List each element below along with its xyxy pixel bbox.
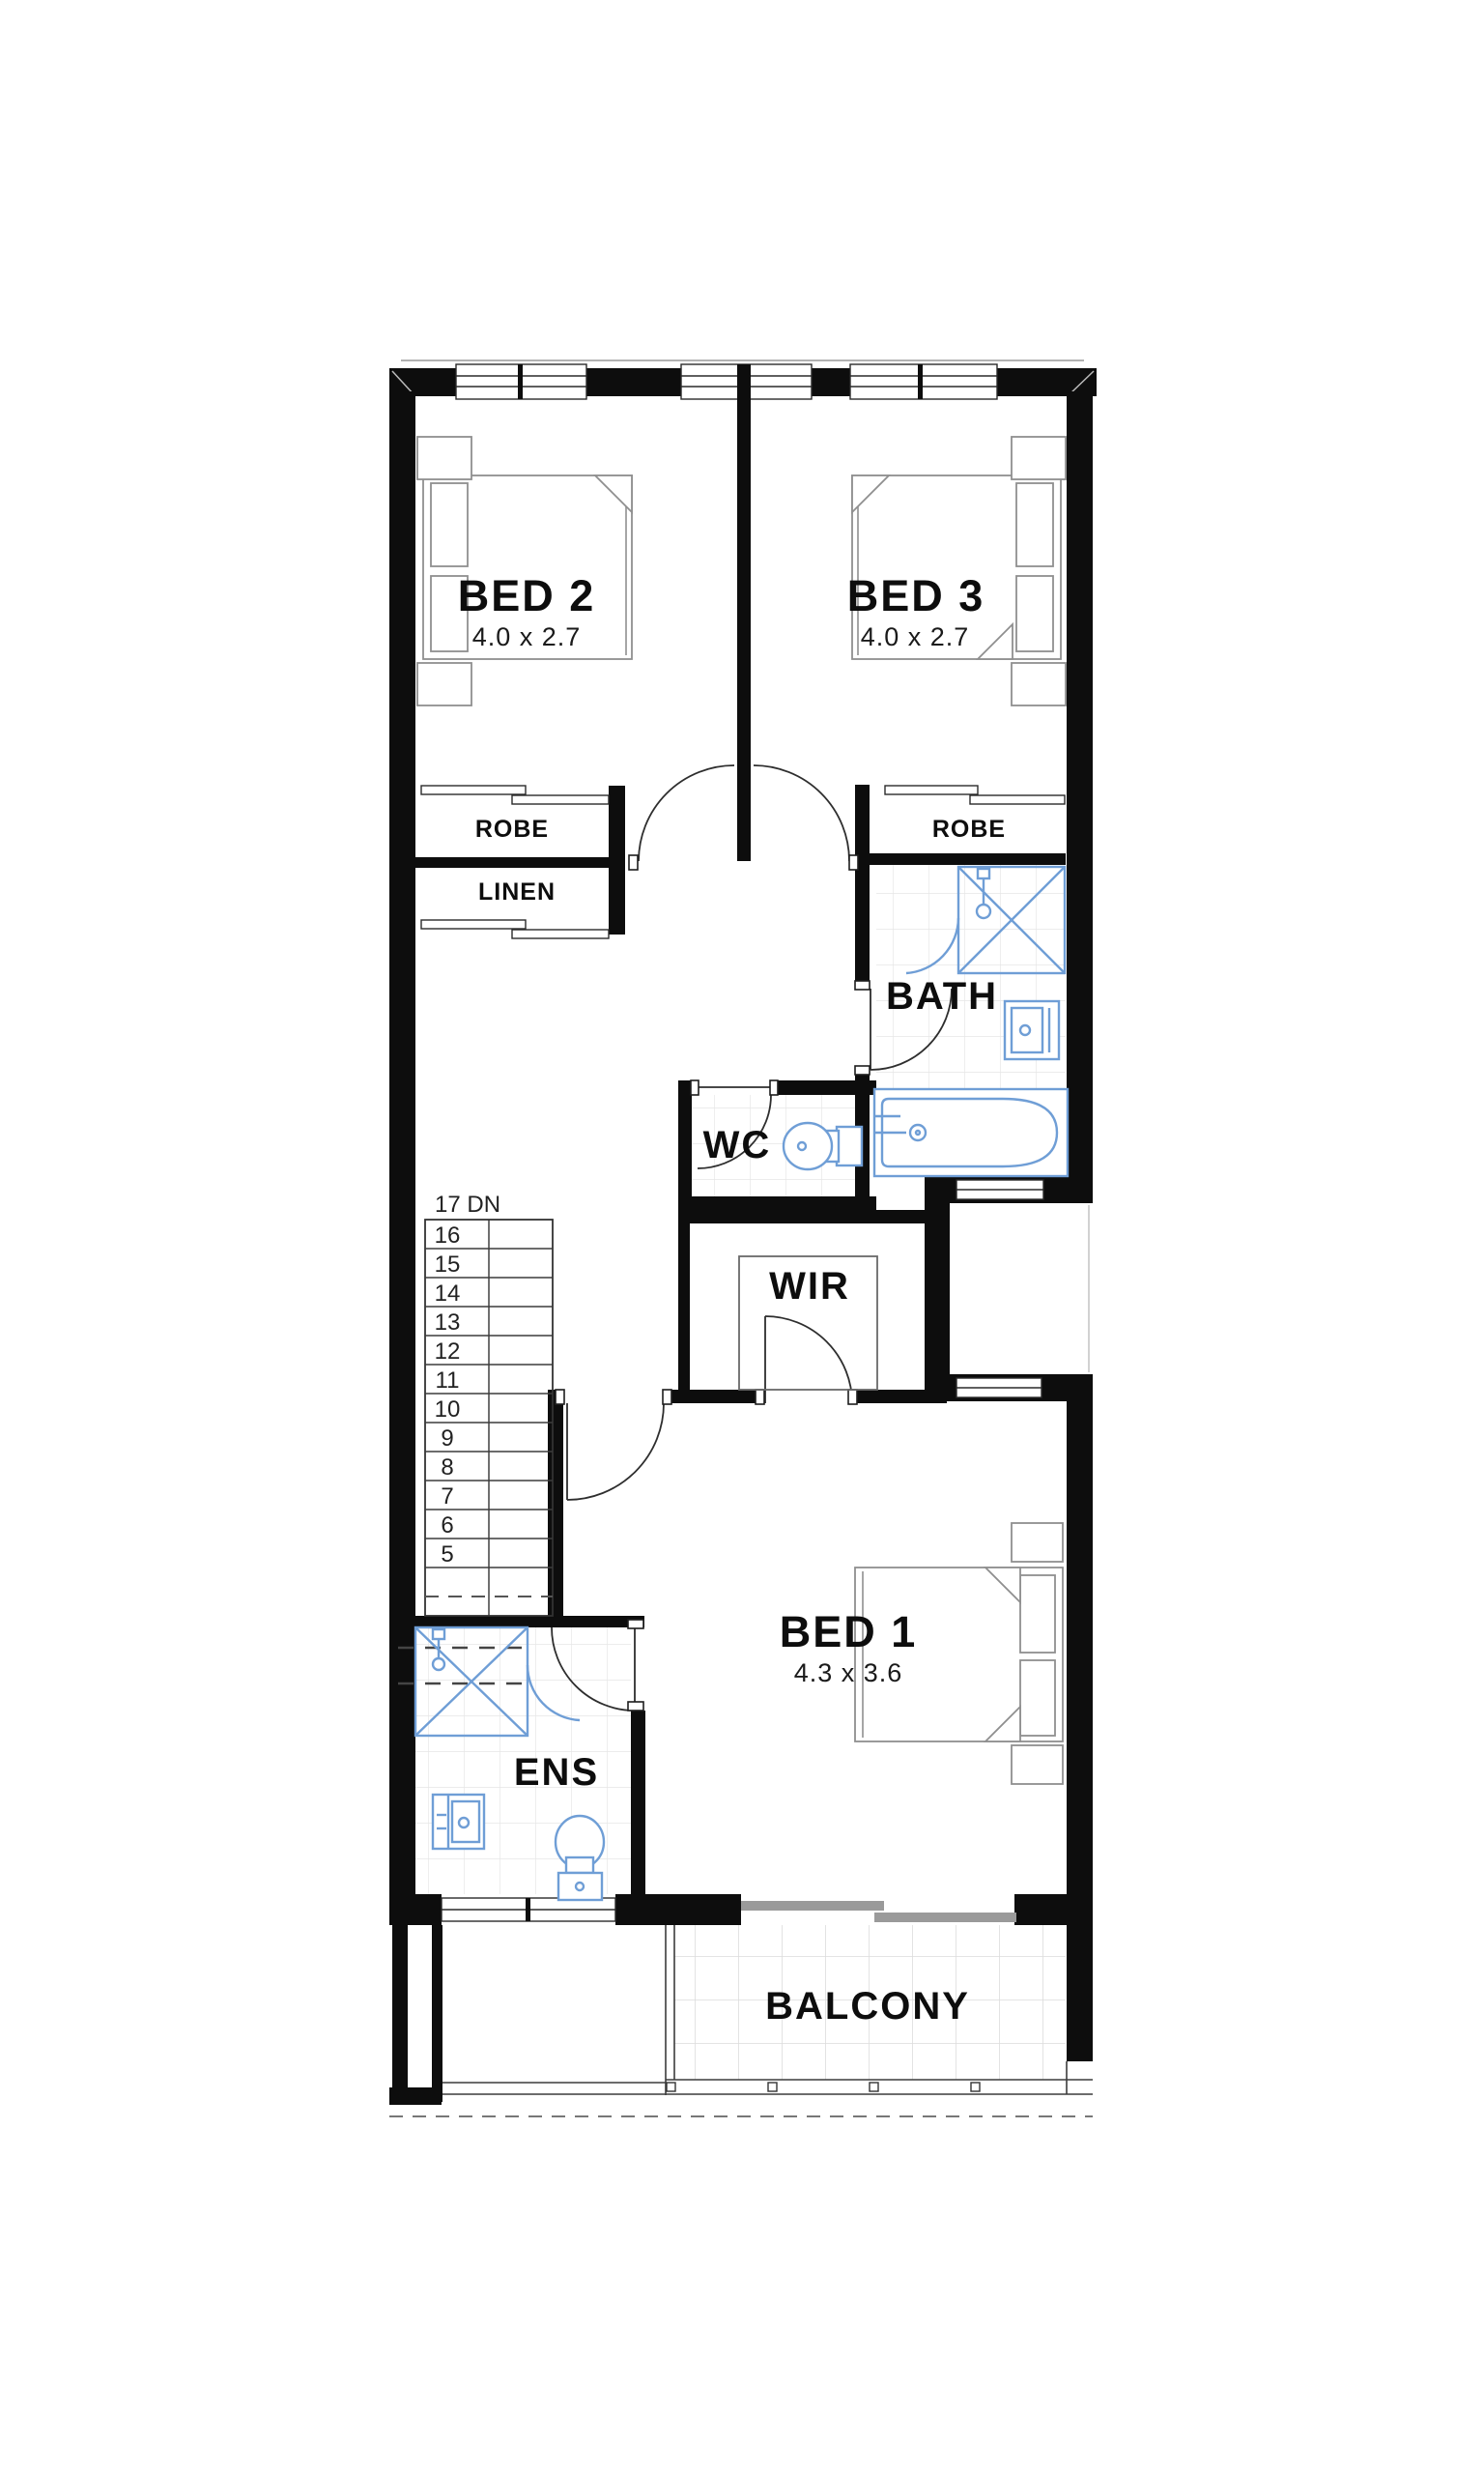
floor-plan: 17 DN 16 15 14 13 12 11 10 9 8 7 6 5: [0, 0, 1484, 2474]
window-bed3-right: [850, 364, 997, 399]
bed3-label: BED 3: [847, 571, 985, 620]
svg-text:10: 10: [435, 1396, 461, 1423]
robe2-sliding-door: [421, 786, 609, 804]
ens-toilet-icon: [556, 1816, 604, 1900]
staircase: 17 DN 16 15 14 13 12 11 10 9 8 7 6 5: [398, 1192, 553, 1683]
svg-text:9: 9: [441, 1425, 453, 1452]
window-bed2: [456, 364, 586, 399]
ens-vanity-icon: [433, 1795, 484, 1849]
window-ens: [442, 1898, 615, 1921]
robe2-label: ROBE: [475, 816, 549, 843]
wir-door: [756, 1316, 857, 1404]
svg-text:14: 14: [435, 1280, 461, 1307]
bed2-door: [629, 765, 734, 870]
ens-label: ENS: [514, 1751, 599, 1794]
bed3-door: [754, 765, 858, 870]
svg-text:12: 12: [435, 1338, 461, 1365]
svg-text:13: 13: [435, 1309, 461, 1336]
wc-toilet-icon: [784, 1123, 862, 1169]
svg-text:5: 5: [441, 1541, 453, 1568]
bathtub-icon: [874, 1089, 1068, 1176]
bath-vanity-icon: [1005, 1001, 1059, 1059]
bed2-dim: 4.0 x 2.7: [472, 622, 582, 651]
wc-label: WC: [703, 1124, 772, 1166]
bed1-label: BED 1: [780, 1607, 918, 1656]
bed2-label: BED 2: [458, 571, 596, 620]
balcony-sliding-door: [741, 1901, 1016, 1922]
void-outline: [389, 2083, 1093, 2116]
stair-tread-numbers: 16 15 14 13 12 11 10 9 8 7 6 5: [435, 1223, 461, 1568]
svg-text:6: 6: [441, 1512, 453, 1539]
wir-label: WIR: [769, 1265, 850, 1308]
svg-text:11: 11: [436, 1367, 460, 1394]
window-bed1: [956, 1378, 1042, 1397]
robe3-sliding-door: [885, 786, 1065, 804]
robe3-label: ROBE: [932, 816, 1006, 843]
svg-text:16: 16: [435, 1223, 461, 1249]
stair-direction-label: 17 DN: [435, 1192, 500, 1218]
svg-text:15: 15: [435, 1251, 461, 1278]
linen-label: LINEN: [478, 878, 556, 906]
window-bath: [956, 1180, 1043, 1199]
bed1-dim: 4.3 x 3.6: [794, 1658, 903, 1687]
bath-label: BATH: [886, 975, 998, 1018]
bed1-door: [556, 1390, 671, 1500]
svg-text:8: 8: [441, 1454, 453, 1481]
balcony-label: BALCONY: [765, 1985, 970, 2028]
svg-text:7: 7: [441, 1483, 453, 1510]
linen-sliding-door: [421, 920, 609, 938]
floor-plan-drawing: 17 DN 16 15 14 13 12 11 10 9 8 7 6 5: [0, 0, 1484, 2474]
bed3-dim: 4.0 x 2.7: [861, 622, 970, 651]
